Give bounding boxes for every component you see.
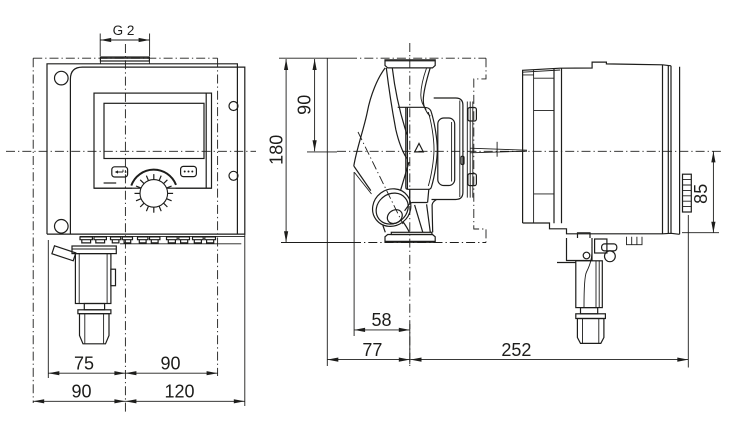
svg-text:120: 120 <box>164 382 194 402</box>
svg-text:90: 90 <box>71 382 91 402</box>
svg-text:90: 90 <box>295 95 315 115</box>
svg-text:252: 252 <box>501 340 531 360</box>
svg-text:90: 90 <box>160 354 180 374</box>
svg-text:180: 180 <box>267 135 287 165</box>
svg-text:58: 58 <box>371 310 391 330</box>
svg-text:75: 75 <box>74 354 94 374</box>
svg-text:77: 77 <box>362 340 382 360</box>
svg-text:G 2: G 2 <box>113 23 135 38</box>
svg-text:85: 85 <box>691 184 711 204</box>
